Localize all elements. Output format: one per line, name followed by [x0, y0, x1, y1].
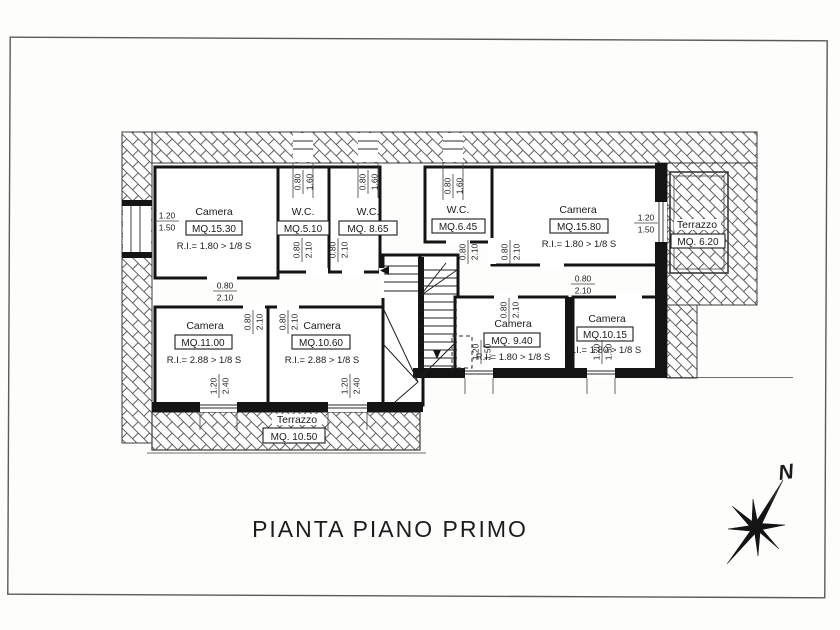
- room-name-label: W.C.: [292, 206, 315, 218]
- svg-text:0.80: 0.80: [500, 243, 510, 260]
- svg-text:1.20: 1.20: [592, 343, 602, 360]
- room-area-label: MQ.6.45: [439, 222, 478, 233]
- svg-text:0.80: 0.80: [278, 313, 288, 330]
- svg-text:0.80: 0.80: [458, 243, 468, 260]
- room-name-label: Camera: [588, 313, 626, 325]
- room-area-label: MQ.11.00: [181, 338, 225, 349]
- svg-text:0.80: 0.80: [328, 241, 338, 258]
- room-name-label: W.C.: [447, 204, 470, 216]
- svg-text:0.80: 0.80: [443, 177, 453, 194]
- room-ri-label: R.I.= 1.80 > 1/8 S: [542, 239, 616, 250]
- dimension-label: 0.802.10: [571, 274, 595, 296]
- room-area-label: MQ. 8.65: [347, 224, 389, 235]
- room-name-label: Camera: [303, 320, 341, 332]
- svg-text:0.80: 0.80: [217, 281, 234, 291]
- svg-text:2.10: 2.10: [290, 313, 300, 330]
- svg-text:1.50: 1.50: [638, 225, 655, 235]
- dimension-label: 0.802.10: [213, 281, 237, 303]
- room-ri-label: R.I.= 1.80 > 1/8 S: [177, 241, 251, 252]
- compass-rose: N: [727, 460, 796, 564]
- svg-text:0.80: 0.80: [499, 301, 509, 318]
- label-terrazzo-10-50: Terrazzo MQ. 10.50: [263, 414, 325, 443]
- room-area-label: MQ.15.30: [192, 224, 236, 235]
- svg-text:2.40: 2.40: [352, 377, 362, 394]
- room-name-label: Camera: [186, 320, 224, 332]
- svg-text:2.10: 2.10: [470, 243, 480, 260]
- room-area-label: MQ. 9.40: [491, 336, 533, 347]
- svg-text:1.20: 1.20: [159, 211, 176, 221]
- room-name-label: Terrazzo: [677, 219, 717, 231]
- svg-text:2.10: 2.10: [512, 243, 522, 260]
- svg-text:2.10: 2.10: [255, 313, 265, 330]
- svg-text:2.40: 2.40: [221, 377, 231, 394]
- svg-text:2.10: 2.10: [340, 241, 350, 258]
- svg-text:0.80: 0.80: [293, 173, 303, 190]
- room-name-label: W.C.: [357, 206, 380, 218]
- room-ri-label: R.I.= 2.88 > 1/8 S: [285, 355, 359, 366]
- svg-text:0.80: 0.80: [243, 313, 253, 330]
- svg-text:0.80: 0.80: [358, 173, 368, 190]
- room-area-label: MQ.10.15: [583, 330, 627, 341]
- svg-text:1.60: 1.60: [455, 177, 465, 194]
- plan-title: PIANTA PIANO PRIMO: [252, 516, 528, 542]
- svg-text:2.10: 2.10: [304, 241, 314, 258]
- svg-text:2.10: 2.10: [217, 293, 234, 303]
- room-area-label: MQ.15.80: [557, 222, 601, 233]
- svg-text:1.50: 1.50: [483, 343, 493, 360]
- floorplan-svg: Camera MQ.15.30 R.I.= 1.80 > 1/8 S W.C. …: [0, 0, 840, 630]
- room-name-label: Camera: [494, 318, 532, 330]
- room-ri-label: R.I.= 2.88 > 1/8 S: [167, 355, 241, 366]
- room-area-label: MQ. 6.20: [677, 237, 719, 248]
- room-name-label: Camera: [559, 204, 597, 216]
- svg-text:2.10: 2.10: [575, 286, 592, 296]
- svg-text:1.60: 1.60: [305, 173, 315, 190]
- svg-text:1.20: 1.20: [340, 377, 350, 394]
- room-area-label: MQ.10.60: [299, 338, 343, 349]
- svg-text:1.20: 1.20: [209, 377, 219, 394]
- north-label: N: [777, 460, 796, 485]
- room-name-label: Camera: [195, 206, 233, 218]
- svg-text:1.60: 1.60: [370, 173, 380, 190]
- svg-text:1.50: 1.50: [159, 223, 176, 233]
- svg-text:0.80: 0.80: [575, 274, 592, 284]
- svg-text:1.20: 1.20: [471, 343, 481, 360]
- room-area-label: MQ. 10.50: [271, 432, 318, 443]
- svg-text:0.80: 0.80: [292, 241, 302, 258]
- label-terrazzo-6-20: Terrazzo MQ. 6.20: [671, 219, 725, 248]
- svg-text:2.10: 2.10: [511, 301, 521, 318]
- scanned-floorplan-page: Camera MQ.15.30 R.I.= 1.80 > 1/8 S W.C. …: [0, 0, 840, 630]
- svg-text:1.20: 1.20: [638, 213, 655, 223]
- room-name-label: Terrazzo: [277, 414, 317, 426]
- room-area-label: MQ.5.10: [284, 224, 323, 235]
- svg-text:1.50: 1.50: [604, 343, 614, 360]
